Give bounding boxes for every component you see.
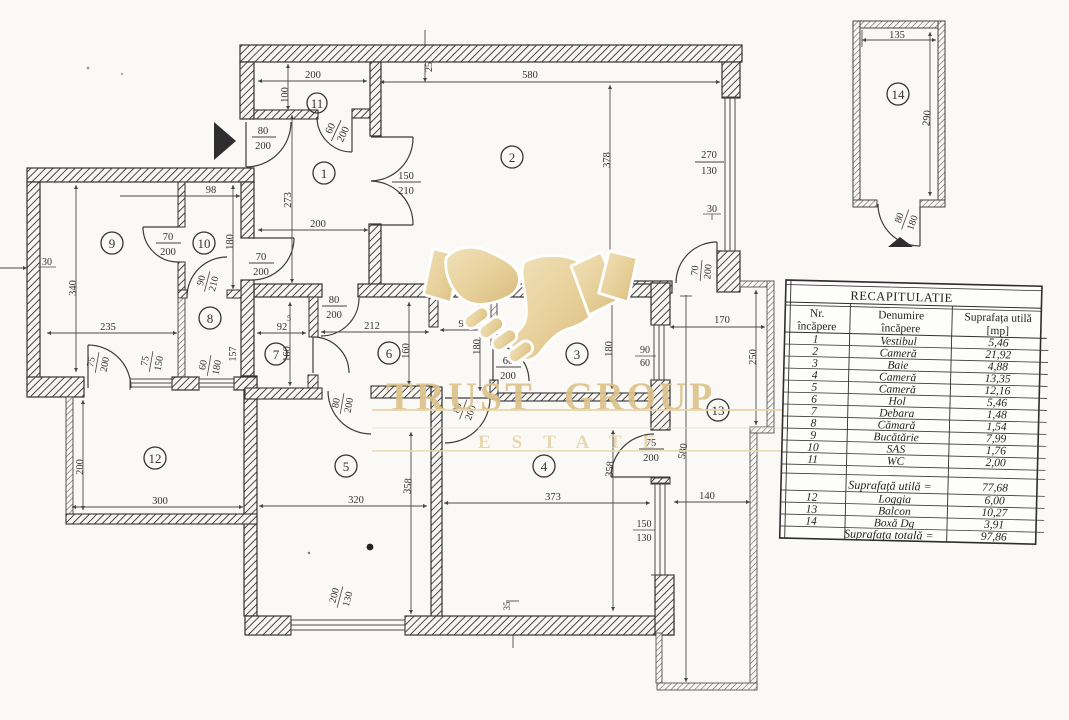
svg-text:170: 170 [714, 315, 730, 326]
svg-text:21,92: 21,92 [985, 349, 1011, 362]
svg-text:3: 3 [811, 358, 818, 370]
svg-text:Cameră: Cameră [879, 371, 917, 384]
svg-text:130: 130 [701, 166, 717, 177]
svg-text:373: 373 [545, 492, 561, 503]
svg-text:11: 11 [311, 96, 324, 111]
svg-text:250: 250 [748, 349, 759, 365]
svg-text:358: 358 [604, 461, 616, 478]
svg-text:Suprafața utilă: Suprafața utilă [964, 311, 1032, 325]
svg-text:RECAPITULATIE: RECAPITULATIE [850, 289, 953, 305]
svg-text:6: 6 [811, 394, 817, 406]
svg-text:30: 30 [707, 204, 717, 215]
svg-text:157: 157 [228, 347, 239, 362]
svg-text:150: 150 [637, 519, 652, 530]
svg-text:3: 3 [574, 347, 581, 362]
svg-text:8: 8 [207, 311, 214, 326]
svg-text:25: 25 [424, 62, 435, 72]
svg-text:6,00: 6,00 [984, 495, 1005, 507]
svg-text:Cămară: Cămară [877, 419, 915, 432]
svg-text:135: 135 [889, 30, 905, 41]
svg-text:6: 6 [386, 346, 393, 361]
svg-text:SAS: SAS [886, 444, 905, 456]
svg-text:Denumire: Denumire [878, 309, 924, 322]
svg-text:180: 180 [225, 234, 236, 250]
svg-text:4: 4 [812, 370, 818, 382]
svg-text:9: 9 [109, 236, 116, 251]
svg-text:210: 210 [398, 186, 414, 197]
svg-text:378: 378 [602, 152, 613, 168]
svg-text:Bucătărie: Bucătărie [873, 431, 919, 444]
svg-text:140: 140 [699, 491, 715, 502]
svg-text:200: 200 [75, 459, 86, 475]
svg-text:7,99: 7,99 [986, 433, 1007, 445]
svg-text:Loggia: Loggia [877, 493, 911, 506]
svg-text:160: 160 [401, 343, 412, 359]
svg-text:200: 200 [253, 267, 269, 278]
svg-text:13: 13 [806, 504, 818, 516]
svg-text:Nr.: Nr. [810, 308, 825, 320]
svg-text:Balcon: Balcon [878, 505, 911, 518]
svg-text:încăpere: încăpere [796, 320, 836, 333]
svg-text:5: 5 [343, 459, 350, 474]
svg-text:Suprafața totală =: Suprafața totală = [844, 526, 934, 542]
svg-text:1: 1 [813, 334, 819, 346]
svg-text:12: 12 [149, 451, 162, 466]
svg-text:3,91: 3,91 [983, 519, 1004, 532]
svg-text:2,00: 2,00 [985, 457, 1006, 469]
svg-text:290: 290 [921, 110, 933, 127]
svg-text:180: 180 [604, 341, 615, 357]
svg-text:1,76: 1,76 [986, 445, 1007, 457]
svg-text:10: 10 [198, 236, 211, 251]
svg-text:încăpere: încăpere [880, 322, 920, 335]
svg-text:Baie: Baie [887, 360, 908, 373]
svg-text:212: 212 [364, 321, 380, 332]
svg-text:75: 75 [139, 355, 152, 367]
svg-text:5,46: 5,46 [987, 397, 1008, 409]
svg-text:12,16: 12,16 [984, 385, 1010, 398]
svg-text:1,48: 1,48 [987, 409, 1008, 421]
svg-text:235: 235 [100, 322, 116, 333]
svg-text:ESTATE: ESTATE [478, 432, 676, 453]
svg-text:70: 70 [256, 252, 267, 263]
svg-text:60: 60 [640, 358, 650, 369]
svg-text:2: 2 [509, 150, 516, 165]
svg-text:200: 200 [310, 219, 326, 230]
svg-text:4,88: 4,88 [988, 361, 1009, 373]
svg-text:11: 11 [807, 454, 818, 466]
svg-text:13,35: 13,35 [985, 373, 1011, 386]
svg-text:5: 5 [287, 314, 291, 323]
svg-text:10: 10 [807, 442, 819, 454]
svg-text:8: 8 [810, 418, 816, 430]
svg-text:130: 130 [637, 533, 652, 544]
svg-text:358: 358 [402, 478, 414, 495]
svg-text:10,27: 10,27 [981, 507, 1008, 520]
svg-text:Hol: Hol [887, 396, 906, 408]
svg-text:30: 30 [42, 257, 52, 268]
svg-text:200: 200 [643, 453, 659, 464]
svg-text:70: 70 [690, 265, 702, 276]
svg-text:14: 14 [805, 516, 817, 528]
svg-text:200: 200 [160, 247, 176, 258]
svg-text:9: 9 [810, 430, 816, 442]
svg-text:4: 4 [541, 459, 548, 474]
svg-text:80: 80 [258, 126, 269, 137]
svg-text:580: 580 [522, 70, 538, 81]
svg-text:TRUST: TRUST [386, 374, 535, 419]
svg-text:270: 270 [701, 150, 717, 161]
svg-text:Cameră: Cameră [880, 347, 918, 360]
svg-text:200: 200 [702, 264, 714, 280]
svg-text:Vestibul: Vestibul [880, 335, 917, 348]
svg-text:[mp]: [mp] [986, 325, 1009, 338]
svg-text:14: 14 [892, 87, 906, 102]
svg-text:1,54: 1,54 [986, 421, 1007, 433]
svg-text:98: 98 [206, 185, 217, 196]
svg-text:12: 12 [806, 492, 818, 504]
svg-text:5: 5 [811, 382, 817, 394]
svg-text:80: 80 [330, 397, 343, 409]
svg-text:70: 70 [163, 232, 174, 243]
svg-text:200: 200 [326, 310, 342, 321]
svg-text:Suprafață utilă =: Suprafață utilă = [848, 478, 932, 494]
svg-text:5,46: 5,46 [988, 337, 1009, 349]
svg-text:7: 7 [273, 347, 280, 362]
svg-text:Debara: Debara [878, 407, 915, 420]
svg-text:GROUP: GROUP [564, 374, 715, 419]
svg-text:35: 35 [502, 601, 512, 611]
svg-text:340: 340 [68, 280, 79, 296]
svg-text:WC: WC [887, 456, 905, 468]
svg-text:320: 320 [348, 495, 364, 506]
svg-text:180: 180 [472, 339, 483, 355]
svg-text:150: 150 [398, 171, 414, 182]
svg-text:97,86: 97,86 [981, 531, 1007, 544]
svg-text:60: 60 [197, 359, 210, 371]
svg-text:2: 2 [812, 346, 818, 358]
svg-text:75: 75 [85, 356, 98, 368]
svg-text:300: 300 [152, 496, 168, 507]
svg-text:90: 90 [640, 345, 650, 356]
svg-text:92: 92 [277, 322, 288, 333]
svg-text:273: 273 [283, 192, 294, 208]
svg-text:80: 80 [329, 295, 340, 306]
svg-text:1: 1 [321, 166, 328, 181]
svg-text:200: 200 [255, 141, 271, 152]
svg-text:200: 200 [305, 70, 321, 81]
svg-text:Cameră: Cameră [879, 383, 917, 396]
svg-text:77,68: 77,68 [982, 482, 1008, 495]
svg-text:100: 100 [280, 87, 291, 103]
